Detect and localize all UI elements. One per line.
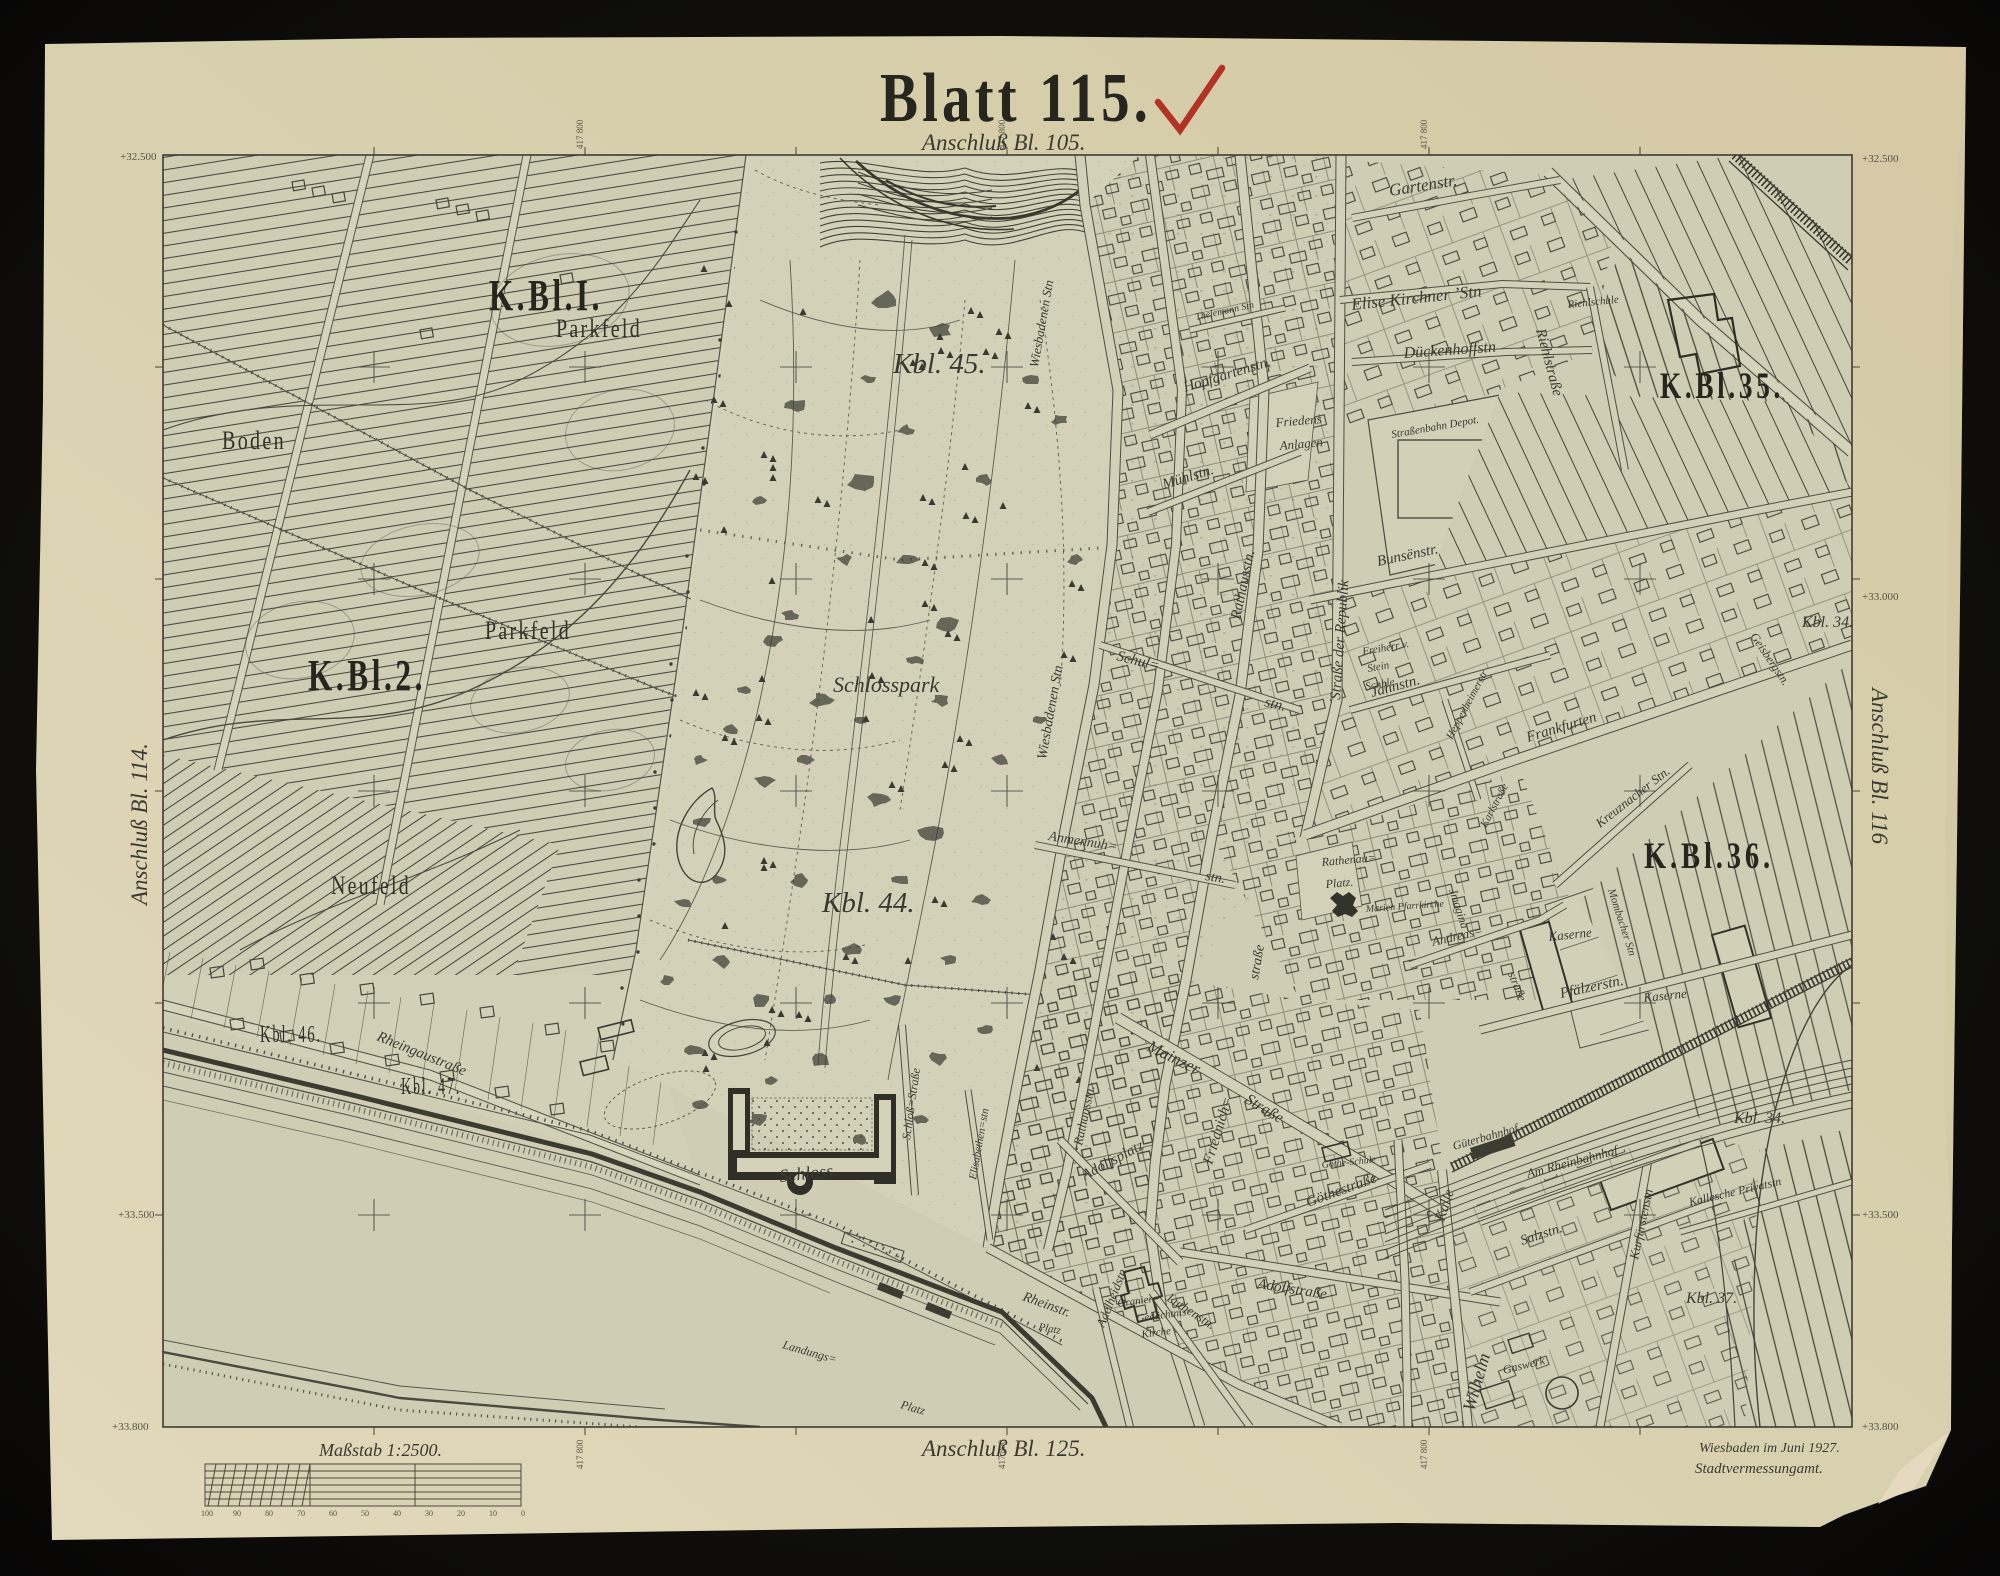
svg-text:40: 40: [393, 1509, 401, 1518]
svg-text:10: 10: [489, 1509, 497, 1518]
svg-text:K.Bl.36.: K.Bl.36.: [1644, 836, 1774, 877]
svg-text:Anschluß Bl. 114.: Anschluß Bl. 114.: [127, 743, 152, 907]
svg-text:60: 60: [329, 1509, 337, 1518]
svg-text:Parkfeld: Parkfeld: [556, 314, 642, 343]
svg-text:Wiesbaden im Juni 1927.: Wiesbaden im Juni 1927.: [1699, 1441, 1840, 1456]
svg-text:70: 70: [297, 1509, 305, 1518]
svg-text:Anschluß Bl. 125.: Anschluß Bl. 125.: [920, 1436, 1086, 1461]
svg-text:+33.800: +33.800: [112, 1421, 149, 1433]
svg-text:+33.800: +33.800: [1862, 1421, 1899, 1433]
svg-text:K.Bl.2.: K.Bl.2.: [308, 651, 426, 700]
svg-text:417 800: 417 800: [575, 119, 585, 149]
svg-text:80: 80: [265, 1509, 273, 1518]
svg-text:Platz.: Platz.: [1324, 875, 1354, 891]
svg-text:Kbl. 34.: Kbl. 34.: [1733, 1110, 1785, 1127]
svg-text:K.Bl.35.: K.Bl.35.: [1660, 366, 1784, 407]
svg-text:Kbl. 44.: Kbl. 44.: [821, 887, 915, 919]
svg-text:+33.500: +33.500: [1862, 1209, 1899, 1221]
svg-text:0: 0: [521, 1509, 525, 1518]
svg-text:417 800: 417 800: [1419, 1439, 1429, 1469]
svg-text:50: 50: [361, 1509, 369, 1518]
svg-text:Kbl. 47.: Kbl. 47.: [401, 1074, 461, 1100]
svg-text:Boden: Boden: [222, 426, 286, 455]
svg-text:Kbl. 34.: Kbl. 34.: [1801, 614, 1853, 631]
svg-text:Parkfeld: Parkfeld: [485, 616, 571, 645]
svg-text:20: 20: [457, 1509, 465, 1518]
svg-text:+32.500: +32.500: [120, 151, 157, 163]
svg-text:Kbl. 46.: Kbl. 46.: [260, 1022, 322, 1048]
svg-text:30: 30: [425, 1509, 433, 1518]
svg-text:Kbl. 37.: Kbl. 37.: [1685, 1290, 1737, 1307]
svg-text:K.Bl.I.: K.Bl.I.: [489, 271, 603, 320]
svg-text:Stadtvermessungamt.: Stadtvermessungamt.: [1695, 1461, 1823, 1477]
svg-text:417 800: 417 800: [575, 1439, 585, 1469]
svg-text:100: 100: [201, 1509, 213, 1518]
svg-text:417 800: 417 800: [1419, 119, 1429, 149]
svg-text:Maßstab 1:2500.: Maßstab 1:2500.: [318, 1440, 442, 1460]
svg-text:Blatt 115.: Blatt 115.: [880, 60, 1152, 137]
svg-text:+33.500: +33.500: [118, 1209, 155, 1221]
svg-text:Kbl. 45.: Kbl. 45.: [892, 348, 986, 380]
svg-text:stn.: stn.: [1204, 869, 1226, 887]
svg-text:+32.500: +32.500: [1862, 153, 1899, 165]
svg-text:Schlosspark: Schlosspark: [833, 672, 941, 697]
svg-text:Neufeld: Neufeld: [331, 871, 411, 900]
svg-text:Anschluß Bl. 105.: Anschluß Bl. 105.: [920, 130, 1086, 155]
svg-text:Anschluß Bl. 116: Anschluß Bl. 116: [1867, 686, 1892, 845]
svg-text:+33.000: +33.000: [1862, 591, 1899, 603]
svg-text:90: 90: [233, 1509, 241, 1518]
